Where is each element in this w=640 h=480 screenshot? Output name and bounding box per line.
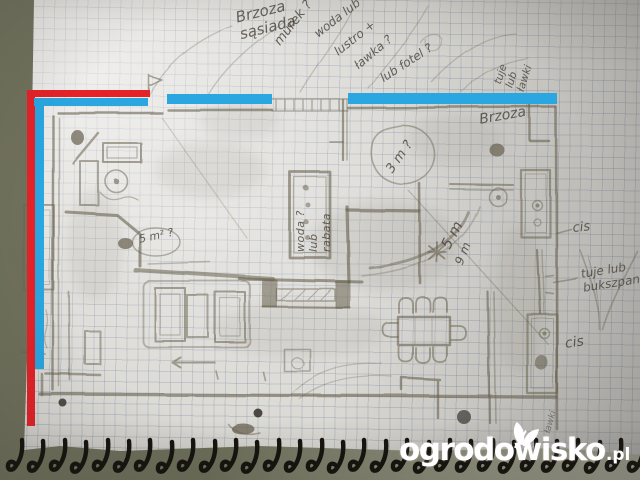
blue-line-top-right — [348, 93, 557, 104]
watermark-tld: .pl — [606, 445, 630, 465]
blue-line-top-left — [34, 98, 148, 106]
notebook-photo: Brzoza sąsiada murek ? woda lub lustro +… — [0, 0, 640, 480]
red-line-left — [27, 90, 35, 426]
red-line-top — [27, 90, 150, 97]
watermark: ogrodowisko.pl — [399, 432, 630, 468]
blue-line-top-mid — [167, 94, 272, 104]
annotation-overlay — [0, 0, 640, 480]
watermark-text: ogrodowisko — [399, 432, 605, 468]
blue-line-left — [35, 98, 44, 369]
watermark-leaf-icon — [503, 417, 543, 454]
